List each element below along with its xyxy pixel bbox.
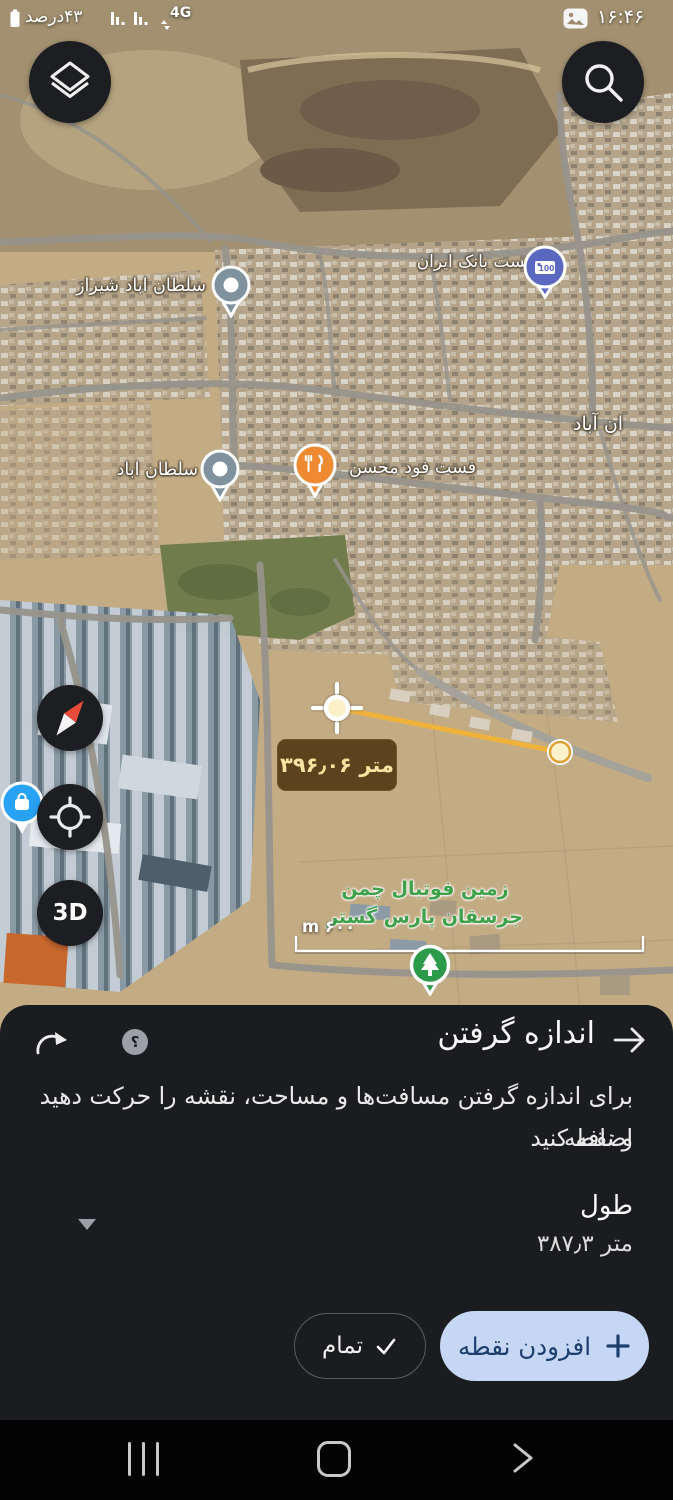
- add-point-label: افزودن نقطه: [458, 1332, 591, 1361]
- signal-bars-icon: [133, 9, 151, 26]
- satellite-imagery: [0, 0, 673, 1012]
- poi-label-sultanabad[interactable]: سلطان اباد: [117, 460, 198, 480]
- done-button[interactable]: تمام: [294, 1313, 426, 1379]
- length-label: طول: [580, 1191, 633, 1221]
- measure-crosshair-marker[interactable]: [311, 682, 363, 734]
- compass-needle-icon: [37, 685, 103, 751]
- gray-place-pin[interactable]: [208, 264, 254, 318]
- done-label: تمام: [322, 1333, 363, 1359]
- 3d-label: 3D: [52, 900, 87, 926]
- satellite-map[interactable]: سلطان اباد شیراز پست بانک ایران 100 سلطا…: [0, 0, 673, 1012]
- park-pin[interactable]: [407, 944, 453, 996]
- help-icon: ؟: [131, 1035, 140, 1050]
- layers-button[interactable]: [29, 41, 111, 123]
- poi-label-an-abad[interactable]: ان آباد: [573, 413, 623, 435]
- search-icon: [562, 41, 644, 123]
- redo-button[interactable]: [30, 1025, 70, 1059]
- redo-icon: [30, 1025, 70, 1059]
- measure-endpoint-marker[interactable]: [545, 737, 575, 767]
- scale-bar: [294, 934, 646, 954]
- photos-notification-icon: [563, 8, 588, 29]
- layers-icon: [29, 41, 111, 123]
- android-nav-bar: [0, 1420, 673, 1500]
- battery-icon: [8, 7, 22, 29]
- battery-percent: ۴۳درصد: [25, 7, 82, 27]
- nav-back-button[interactable]: [506, 1441, 540, 1475]
- bank-pin[interactable]: 100: [520, 243, 570, 301]
- recents-button[interactable]: [128, 1442, 159, 1476]
- sheet-description-line2: اضافه کنید: [26, 1117, 633, 1159]
- my-location-button[interactable]: [37, 784, 103, 850]
- search-button[interactable]: [562, 41, 644, 123]
- checkmark-icon: [374, 1334, 398, 1358]
- length-value: ۳۸۷٫۳ متر: [537, 1231, 633, 1257]
- measure-distance-value: ۳۹۶٫۰۶ متر: [280, 753, 394, 777]
- plus-icon: [605, 1333, 631, 1359]
- network-type: 4G: [170, 5, 191, 21]
- back-arrow-icon: [611, 1023, 649, 1057]
- 3d-toggle-button[interactable]: 3D: [37, 880, 103, 946]
- measure-distance-chip: ۳۹۶٫۰۶ متر: [277, 739, 397, 791]
- add-point-button[interactable]: افزودن نقطه: [440, 1311, 649, 1381]
- phone-screen: سلطان اباد شیراز پست بانک ایران 100 سلطا…: [0, 0, 673, 1500]
- football-field-label-line1[interactable]: زمین فوتبال چمن: [270, 878, 580, 900]
- chevron-down-icon[interactable]: [78, 1219, 96, 1230]
- help-button[interactable]: ؟: [122, 1029, 148, 1055]
- poi-label-fastfood[interactable]: فست فود محسن: [349, 458, 476, 478]
- data-arrows-icon: [160, 20, 172, 30]
- back-button[interactable]: [611, 1023, 649, 1057]
- measure-bottom-sheet: اندازه گرفتن ؟ برای اندازه گرفتن مسافت‌ه…: [0, 1005, 673, 1420]
- poi-label-post-bank[interactable]: پست بانک ایران: [417, 252, 530, 272]
- sheet-title: اندازه گرفتن: [437, 1016, 595, 1051]
- restaurant-pin[interactable]: [291, 442, 339, 498]
- home-button[interactable]: [317, 1441, 351, 1477]
- status-time: ۱۶:۴۶: [597, 6, 644, 28]
- my-location-icon: [37, 784, 103, 850]
- gray-place-pin[interactable]: [197, 448, 243, 502]
- bank-pin-text: 100: [539, 264, 555, 273]
- signal-bars-icon: [110, 9, 128, 26]
- poi-label-sultanabad-shiraz[interactable]: سلطان اباد شیراز: [76, 276, 206, 296]
- compass-button[interactable]: [37, 685, 103, 751]
